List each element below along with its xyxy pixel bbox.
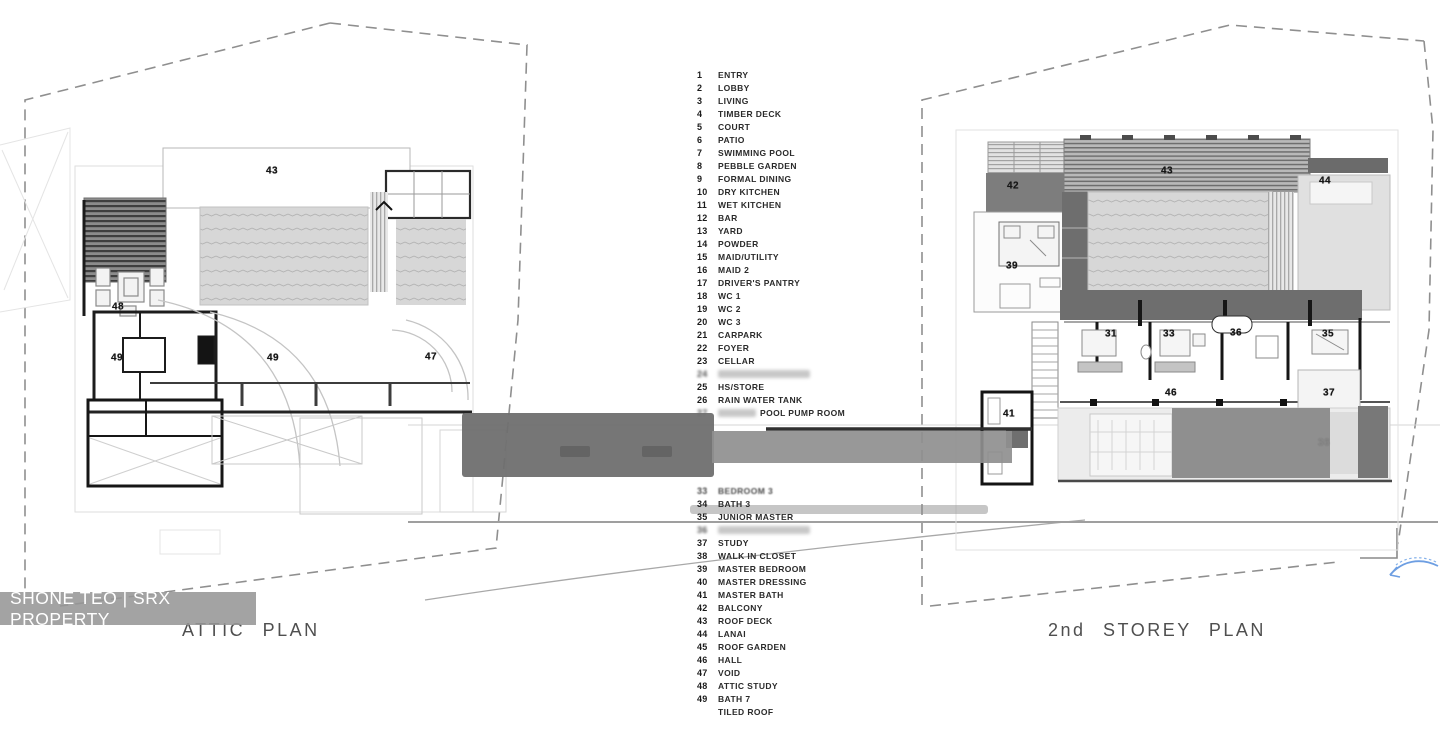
- bridge-bar: [712, 431, 1012, 463]
- watermark-text: SHONE TEO | SRX PROPERTY: [10, 588, 256, 630]
- watermark-banner: SHONE TEO | SRX PROPERTY: [0, 592, 256, 625]
- floorplan-sheet: 1ENTRY2LOBBY3LIVING4TIMBER DECK5COURT6PA…: [0, 0, 1440, 731]
- bridge-block: [462, 413, 714, 477]
